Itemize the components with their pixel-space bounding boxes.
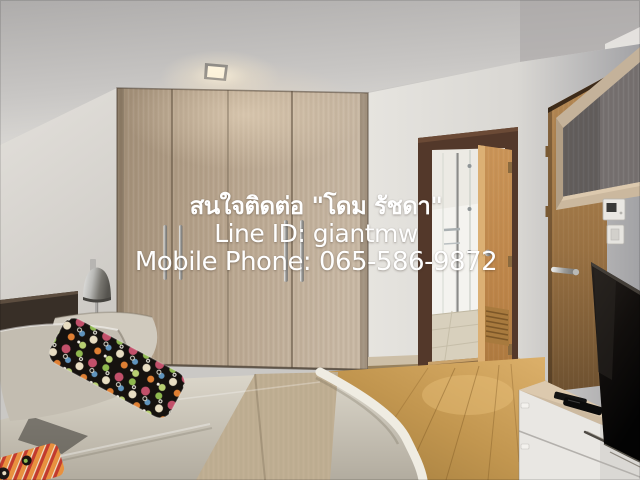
- overlay-line-id-text: Line ID: giantmw: [0, 219, 632, 248]
- drawer-handle: [521, 403, 529, 408]
- bedroom-photo: สนใจติดต่อ "โดม รัชดา" Line ID: giantmw …: [0, 0, 640, 480]
- drawer-handle: [521, 444, 529, 449]
- door-louver-vent: [485, 306, 509, 346]
- door-hinge: [546, 146, 550, 157]
- overlay-phone-text: Mobile Phone: 065-586-9872: [0, 247, 632, 277]
